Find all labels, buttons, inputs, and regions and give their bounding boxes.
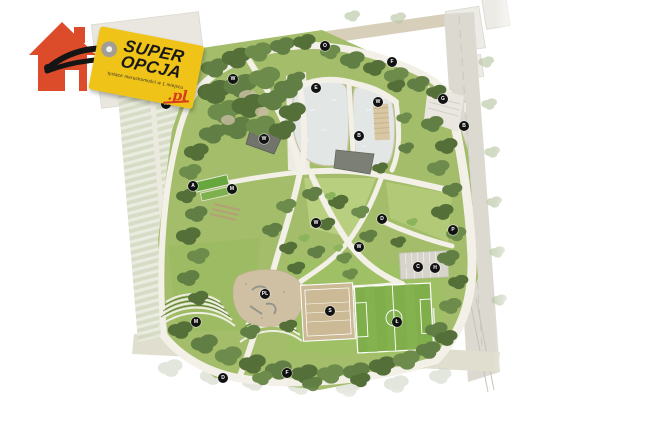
map-marker: A: [188, 181, 198, 191]
map-marker: W: [259, 134, 269, 144]
map-marker: Ł: [392, 317, 402, 327]
map-marker: E: [311, 83, 321, 93]
map-marker: G: [438, 94, 448, 104]
map-marker: W: [228, 74, 238, 84]
right-fade: [494, 0, 654, 442]
map-marker: M: [191, 317, 201, 327]
map-marker: O: [320, 41, 330, 51]
map-marker: F: [282, 368, 292, 378]
superopcja-logo: SUPER OPCJA tysiące nieruchomości w 1 mi…: [18, 8, 213, 110]
map-marker: B: [354, 131, 364, 141]
map-marker: S: [325, 306, 335, 316]
map-marker: C: [413, 262, 423, 272]
boardwalk-deck: [373, 104, 390, 141]
map-marker: D: [377, 214, 387, 224]
map-marker: H: [430, 263, 440, 273]
map-marker: M: [227, 184, 237, 194]
map-marker: F: [387, 57, 397, 67]
map-marker: D: [218, 373, 228, 383]
map-marker: W: [311, 218, 321, 228]
logo-domain-suffix: .pl: [167, 88, 188, 105]
map-marker: W: [373, 97, 383, 107]
map-marker: W: [354, 242, 364, 252]
playground: [233, 270, 303, 327]
screenshot-canvas: O F G B E W B W M W A M W D W P C H S Ł …: [0, 0, 654, 442]
grommet-icon: [100, 40, 119, 59]
map-marker: PL: [260, 289, 270, 299]
map-marker-parking: P: [448, 225, 458, 235]
map-marker: B: [459, 121, 469, 131]
